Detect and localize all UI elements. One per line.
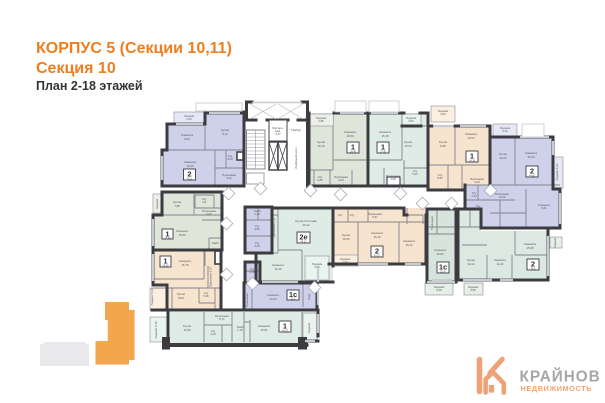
svg-text:КРАЙНОВ: КРАЙНОВ [520, 368, 601, 386]
svg-text:НЕДВИЖИМОСТЬ: НЕДВИЖИМОСТЬ [521, 384, 593, 393]
